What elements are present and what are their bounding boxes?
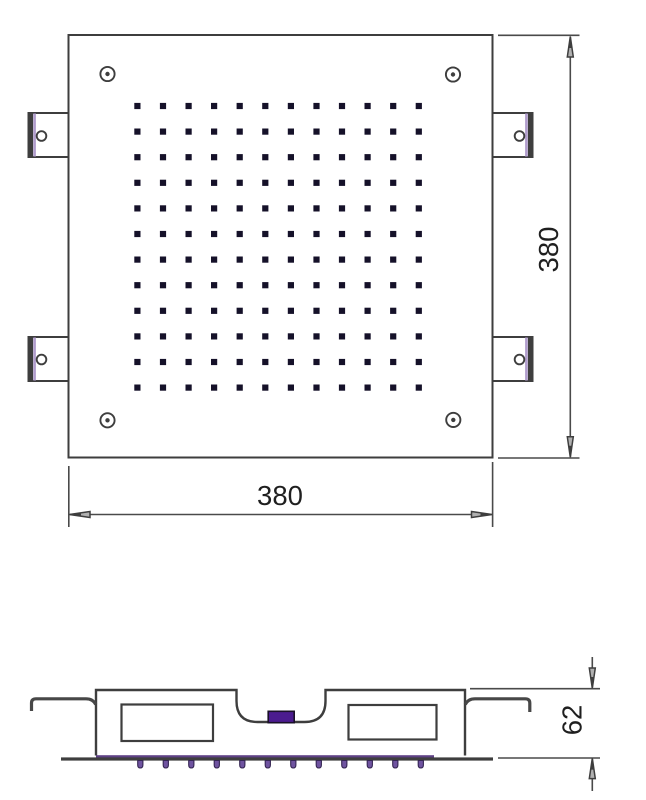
svg-text:62: 62 xyxy=(557,705,588,736)
svg-text:380: 380 xyxy=(533,227,564,273)
svg-text:380: 380 xyxy=(257,480,303,511)
